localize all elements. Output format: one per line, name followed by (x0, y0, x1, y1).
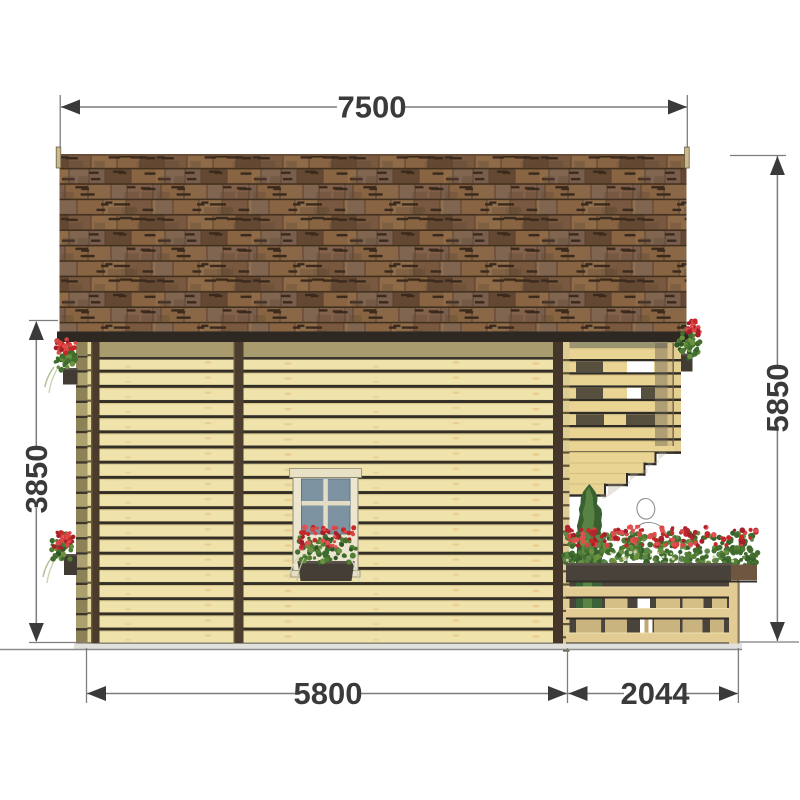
svg-text:2044: 2044 (621, 676, 691, 711)
svg-text:5850: 5850 (760, 364, 795, 433)
svg-text:5800: 5800 (294, 676, 363, 711)
svg-text:7500: 7500 (338, 90, 407, 125)
svg-text:3850: 3850 (19, 445, 54, 514)
